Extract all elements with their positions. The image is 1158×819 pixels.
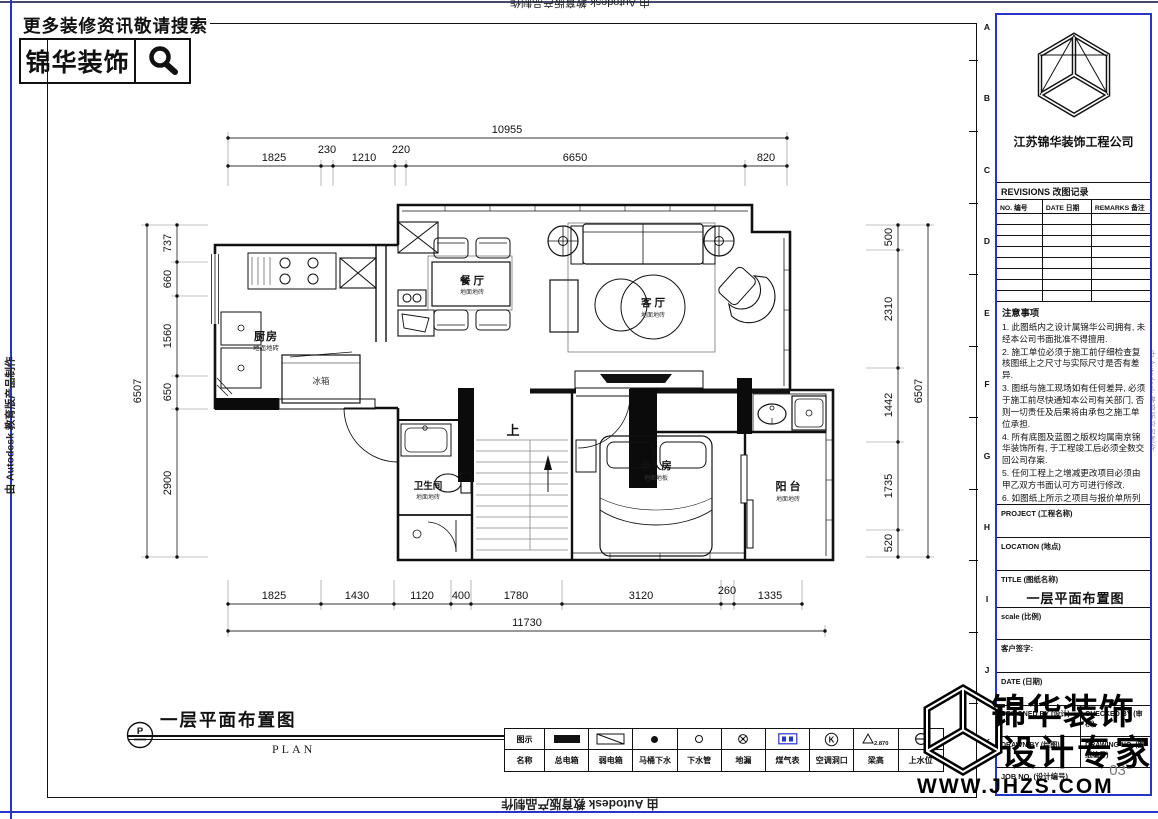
legend-name-row: 名称 总电箱 弱电箱 马桶下水 下水管 地漏 煤气表 空调洞口 梁高 上水位 [505,750,943,771]
dim: 2900 [162,471,174,495]
legend-name: 上水位 [899,750,943,771]
note-item: 6. 如图纸上所示之项目与报价单所列的项目有不符时, 以报价单或合同为准. [1002,493,1146,505]
dim-bottom-total: 11730 [512,617,542,629]
legend-name: 煤气表 [766,750,810,771]
svg-text:K: K [829,735,835,744]
promo-brand-label: 锦华装饰 [21,40,134,82]
legend-icon-row: 图示 K 2.870 [505,729,943,750]
field-drawing-no: DRAWING NO. (图纸编号) 03 [1081,737,1150,767]
dim: 660 [162,270,174,288]
company-logo: 江苏锦华装饰工程公司 [997,15,1150,183]
wash-corridor [753,394,826,432]
dim-top-dots [226,136,788,167]
rev-row [997,236,1150,247]
floor-drain-icon [722,729,766,749]
dim: 737 [162,234,174,252]
water-supply-icon [899,729,943,749]
search-icon [134,40,189,82]
dim-left-total: 6507 [132,379,144,403]
rev-row [997,258,1150,269]
rev-row [997,280,1150,291]
drawing-title-value: 一层平面布置图 [1001,588,1150,607]
fridge-label: 冰箱 [312,376,330,386]
field-customer-sign: 客户签字: [997,640,1150,673]
field-title: TITLE (图纸名称) 一层平面布置图 [997,571,1150,608]
field-scale: scale (比例) [997,608,1150,640]
dim: 1210 [352,152,376,164]
plan-heading-rule [128,735,508,737]
rev-row [997,269,1150,280]
room-floor-living: 地面地砖 [641,311,665,319]
dim-top [228,132,787,186]
dim: 1560 [162,324,174,348]
field-job-no: JOB NO. (设计编号) [997,768,1150,788]
field-drawn-by: DRAWN BY (绘图) [997,737,1081,767]
drain-pipe-icon [678,729,722,749]
room-floor-dining: 地面地砖 [460,288,484,296]
room-label-bath: 卫生间 [414,480,443,492]
plan-heading-en: PLAN [272,742,315,757]
legend-name: 总电箱 [545,750,589,771]
dim: 520 [883,534,895,552]
room-label-balcony: 阳 台 [775,479,800,493]
note-item: 3. 图纸与施工现场如有任何差异, 必须于施工前尽快通知本公司有关部门, 否则一… [1002,383,1146,430]
gas-meter-icon [766,729,810,749]
dim: 3120 [629,590,653,602]
plan-heading: 一层平面布置图 [160,707,297,732]
legend-name: 梁高 [854,750,898,771]
rev-row [997,214,1150,225]
note-item: 4. 所有底图及蓝图之版权均属南京锦华装饰所有, 于工程竣工后必须全数交回公司存… [1002,432,1146,468]
rev-col-no: NO. 编号 [997,200,1043,213]
company-name: 江苏锦华装饰工程公司 [1013,133,1133,150]
legend-col-icon: 图示 [505,729,545,749]
gas-meter [398,290,434,336]
weak-electric-box-icon [589,729,633,749]
field-location: LOCATION (地点) [997,538,1150,571]
beam-height-value: 2.870 [874,741,889,747]
room-floor-balcony: 地面地砖 [776,495,800,503]
field-title-label: TITLE (图纸名称) [1001,575,1058,584]
revisions-title: REVISIONS 改图记录 [997,183,1150,200]
dim: 650 [162,383,174,401]
legend-name: 马桶下水 [633,750,677,771]
field-date: DATE (日期) [997,673,1150,706]
room-label-elder: 老人房 [639,459,672,472]
dim-top-total: 10955 [492,124,523,136]
dim-left [141,225,208,557]
field-designed-by: DESIGNED BY (设计) [997,706,1081,736]
promo-slogan: 更多装修资讯敬请搜索 [21,13,210,38]
dim: 1335 [758,590,782,602]
title-block: 江苏锦华装饰工程公司 REVISIONS 改图记录 NO. 编号 DATE 日期… [995,13,1152,796]
stairs-up-label: 上 [506,423,519,438]
field-project: PROJECT (工程名称) [997,505,1150,538]
dim: 1825 [262,590,286,602]
field-checked-by: CHECKED BY (审核) [1081,706,1150,736]
toilet-drain-icon [633,729,677,749]
dim: 2310 [883,297,895,321]
dim: 1825 [262,152,286,164]
legend-name: 下水管 [678,750,722,771]
rev-row [997,291,1150,302]
dim: 1430 [345,590,369,602]
room-label-living: 客 厅 [640,296,665,309]
note-item: 5. 任何工程上之增减更改项目必须由甲乙双方书面认可方可进行修改. [1002,468,1146,492]
dim: 6650 [563,152,587,164]
note-item: 2. 施工单位必须于施工前仔细检查复核图纸上之尺寸与实际尺寸是否有差异. [1002,347,1146,383]
legend-name: 弱电箱 [589,750,633,771]
promo-search-box: 锦华装饰 [19,38,191,84]
stairs [476,440,568,550]
main-electric-box-icon [545,729,589,749]
rev-row [997,247,1150,258]
balcony [741,455,753,548]
field-designed-checked: DESIGNED BY (设计) CHECKED BY (审核) [997,706,1150,737]
floor-plan: 10955 1825 230 1210 220 6650 820 1825 14… [0,0,1158,819]
dim: 220 [392,144,410,156]
plan-heading-rule2 [128,739,508,740]
field-drawn-drawingno: DRAWN BY (绘图) DRAWING NO. (图纸编号) 03 [997,737,1150,768]
dim-right-total: 6507 [913,379,925,403]
notes-title: 注意事项 [1002,307,1146,320]
rev-col-remarks: REMARKS 备注 [1092,200,1150,213]
legend-table: 图示 K 2.870 名称 总电箱 弱电箱 马桶下水 下水管 地漏 煤气表 空调… [504,728,944,772]
dim: 1735 [883,474,895,498]
room-floor-elder: 地面地板 [644,474,668,482]
revisions-header: NO. 编号 DATE 日期 REMARKS 备注 [997,200,1150,214]
living-room [548,223,786,388]
dim: 260 [718,585,736,597]
legend-col-name: 名称 [505,750,545,771]
dim: 1120 [410,590,434,602]
legend-name: 空调洞口 [810,750,854,771]
note-item: 1. 此图纸内之设计属锦华公司拥有, 未经本公司书面批准不得擅用. [1002,322,1146,346]
room-floor-kitchen: 地面地砖 [253,343,280,352]
ac-opening-icon: K [810,729,854,749]
dim: 500 [883,228,895,246]
rev-row [997,225,1150,236]
field-drawing-no-label: DRAWING NO. (图纸编号) [1085,742,1145,759]
room-label-kitchen: 厨房 [254,329,278,343]
shaft-boxes [340,222,438,288]
cube-logo-icon [1028,27,1120,123]
dim: 400 [452,590,470,602]
room-floor-bath: 地面地砖 [416,493,440,501]
dim: 230 [318,144,336,156]
legend-name: 地漏 [722,750,766,771]
dim: 820 [757,152,775,164]
kitchen [217,253,360,403]
dim: 1442 [883,393,895,417]
entry-door [344,408,398,462]
dim: 1780 [504,590,528,602]
notes-section: 注意事项 1. 此图纸内之设计属锦华公司拥有, 未经本公司书面批准不得擅用. 2… [997,302,1150,505]
rev-col-date: DATE 日期 [1043,200,1092,213]
beam-height-icon: 2.870 [854,729,898,749]
room-label-dining: 餐 厅 [459,274,484,287]
